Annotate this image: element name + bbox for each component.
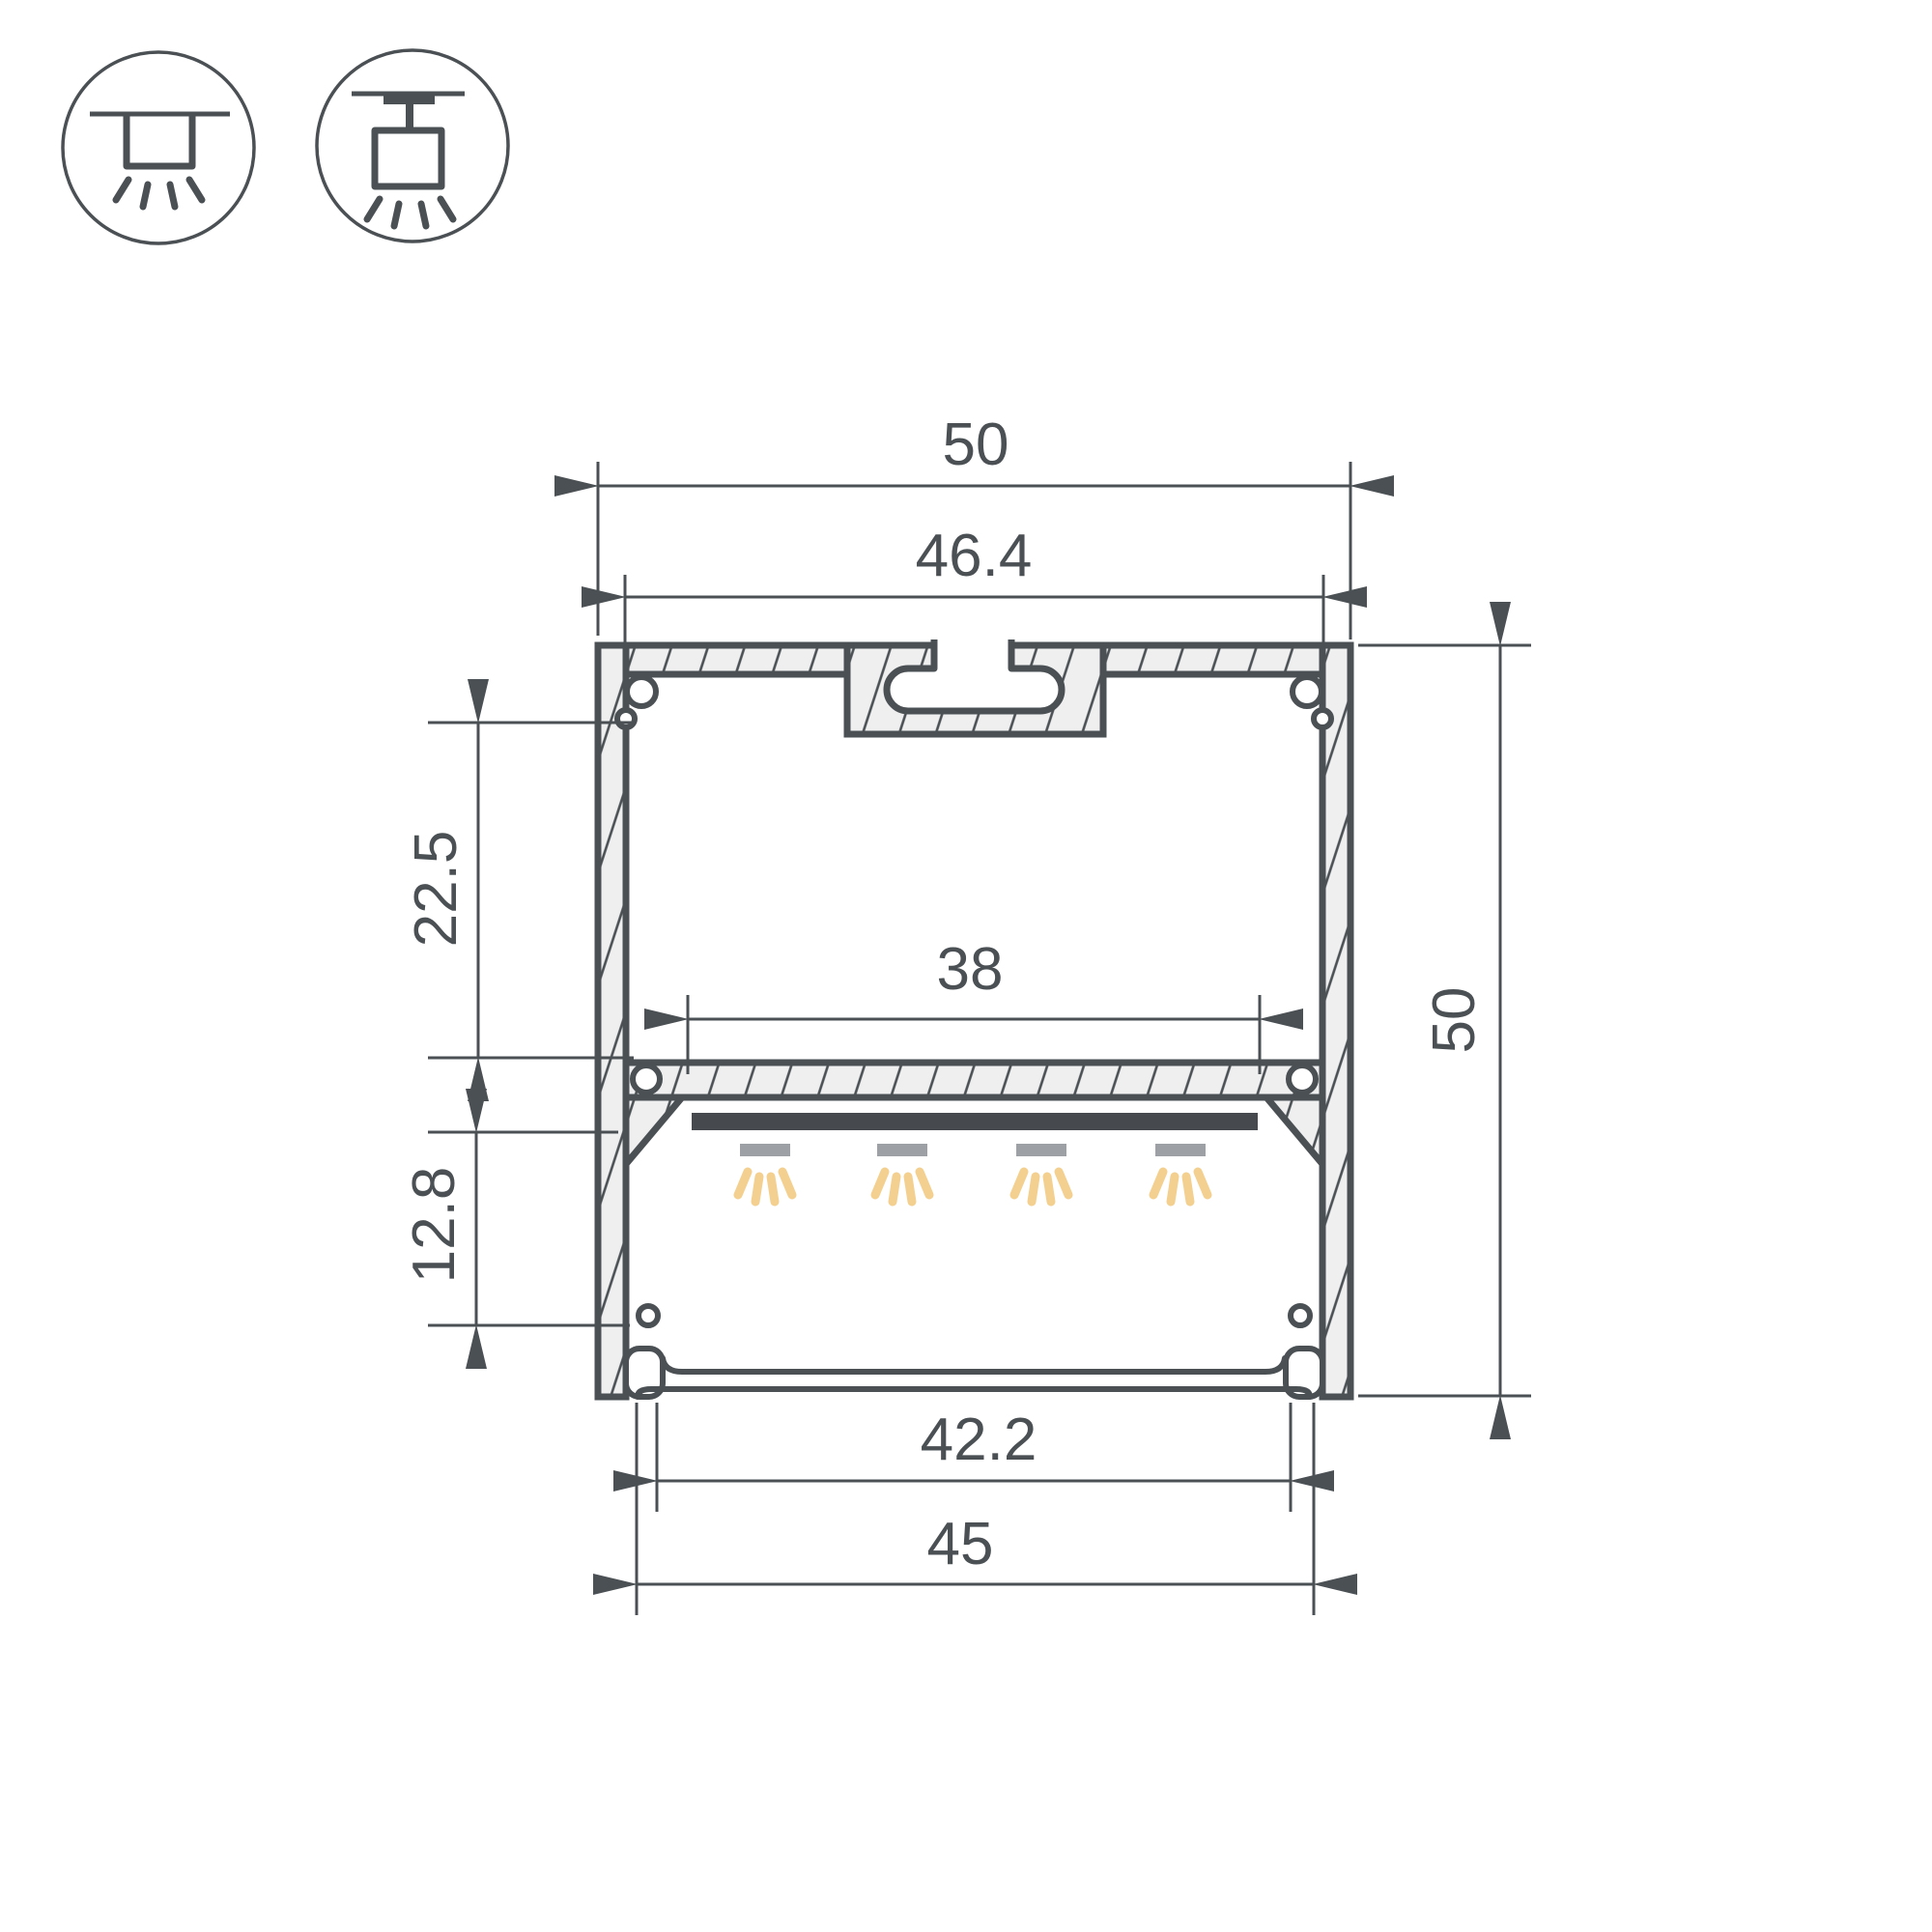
light-ray xyxy=(1198,1172,1207,1195)
screw-boss-bottom-left xyxy=(639,1306,658,1325)
dim-label-overall-width: 50 xyxy=(943,412,1009,478)
dim-label-diffuser-width: 42.2 xyxy=(921,1406,1037,1473)
pendant-mount-icon xyxy=(317,50,508,241)
dim-diffuser-width: 42.2 xyxy=(657,1403,1291,1512)
screw-boss-top-left-curl xyxy=(617,710,635,727)
screw-boss-top-left xyxy=(627,677,656,706)
led-module-group xyxy=(738,1144,792,1202)
led-module-group xyxy=(1014,1144,1068,1202)
light-rays xyxy=(116,180,202,207)
light-ray xyxy=(920,1172,929,1195)
led-strip xyxy=(692,1113,1258,1130)
screw-boss-shelf-right xyxy=(1289,1065,1316,1093)
dim-label-upper-chamber-height: 22.5 xyxy=(403,831,469,948)
light-ray xyxy=(755,1177,759,1202)
mount-type-icons xyxy=(63,50,508,243)
led-module xyxy=(1016,1144,1066,1156)
light-ray xyxy=(771,1177,775,1202)
light-ray xyxy=(738,1172,748,1195)
led-module xyxy=(877,1144,927,1156)
light-ray xyxy=(367,199,380,219)
diffuser-bottom-line xyxy=(638,1389,1310,1397)
dim-led-shelf-width: 38 xyxy=(688,936,1260,1074)
light-ray xyxy=(440,199,453,219)
led-module-group xyxy=(875,1144,929,1202)
light-ray xyxy=(143,185,148,207)
light-ray xyxy=(189,180,202,200)
dimensions: 50 46.4 38 22.5 12.8 xyxy=(401,412,1531,1615)
right-wall xyxy=(1322,645,1350,1397)
left-wall xyxy=(598,645,626,1397)
dim-label-overall-height: 50 xyxy=(1421,987,1488,1054)
drawing-canvas: 50 46.4 38 22.5 12.8 xyxy=(0,0,1932,1932)
led-shelf xyxy=(626,1063,1322,1097)
light-ray xyxy=(116,180,128,200)
light-ray xyxy=(1059,1172,1068,1195)
icon-circle xyxy=(63,52,254,243)
light-ray xyxy=(875,1172,885,1195)
diffuser-cover xyxy=(638,1358,1310,1397)
left-chamfer xyxy=(626,1097,682,1164)
profile-body xyxy=(375,130,441,186)
dim-label-led-shelf-width: 38 xyxy=(937,936,1004,1003)
profile-dimension-drawing: 50 46.4 38 22.5 12.8 xyxy=(0,0,1932,1932)
light-ray xyxy=(908,1177,912,1202)
light-ray xyxy=(893,1177,896,1202)
icon-circle xyxy=(317,50,508,241)
dim-label-lower-chamber-height: 12.8 xyxy=(401,1167,468,1284)
led-module xyxy=(1155,1144,1206,1156)
light-ray xyxy=(1047,1177,1051,1202)
light-ray xyxy=(394,204,399,226)
light-ray xyxy=(170,185,175,207)
led-module xyxy=(740,1144,790,1156)
screw-boss-top-right-curl xyxy=(1314,710,1331,727)
led-strip-assembly xyxy=(692,1113,1258,1202)
light-ray xyxy=(1032,1177,1036,1202)
light-ray xyxy=(782,1172,792,1195)
light-ray xyxy=(1153,1172,1163,1195)
light-rays xyxy=(367,199,453,226)
screw-boss-top-right xyxy=(1293,677,1321,706)
screw-boss-shelf-left xyxy=(633,1065,660,1093)
right-chamfer xyxy=(1266,1097,1322,1164)
screw-boss-bottom-right xyxy=(1291,1306,1310,1325)
profile-body xyxy=(127,116,192,166)
surface-mount-icon xyxy=(63,52,254,243)
light-ray xyxy=(1186,1177,1190,1202)
dim-label-top-inner-width: 46.4 xyxy=(916,523,1033,589)
light-ray xyxy=(1014,1172,1024,1195)
led-module-group xyxy=(1153,1144,1207,1202)
dim-overall-height: 50 xyxy=(1358,645,1531,1396)
light-ray xyxy=(1171,1177,1175,1202)
dim-label-bottom-width: 45 xyxy=(927,1511,994,1577)
light-ray xyxy=(421,204,426,226)
diffuser-top-line xyxy=(663,1358,1285,1372)
